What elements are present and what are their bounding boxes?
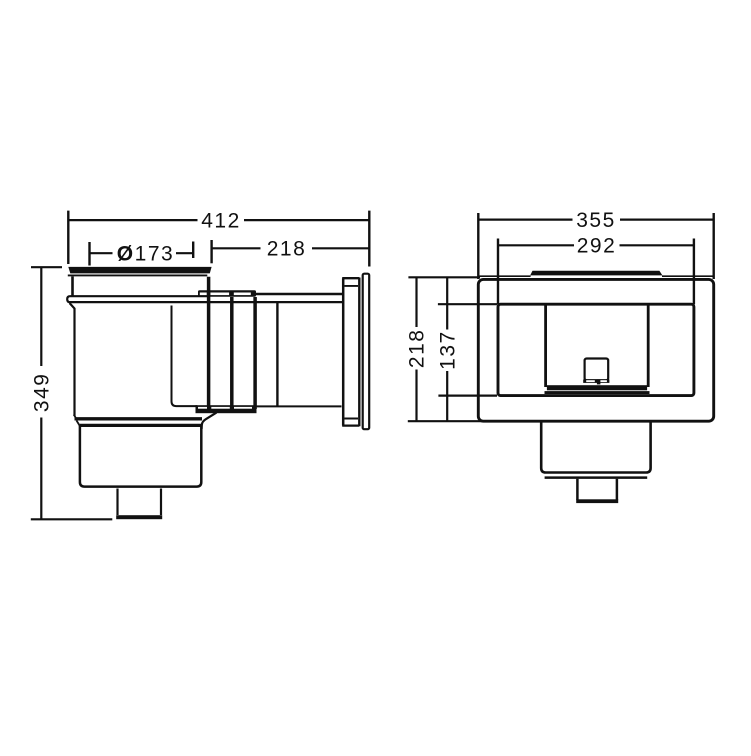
svg-text:218: 218 [267, 238, 307, 261]
svg-text:218: 218 [406, 329, 429, 369]
svg-text:292: 292 [577, 235, 617, 258]
svg-text:Ø173: Ø173 [117, 242, 174, 265]
svg-text:355: 355 [576, 209, 616, 232]
svg-text:412: 412 [201, 209, 241, 232]
svg-text:349: 349 [31, 373, 54, 413]
svg-text:137: 137 [436, 330, 459, 370]
